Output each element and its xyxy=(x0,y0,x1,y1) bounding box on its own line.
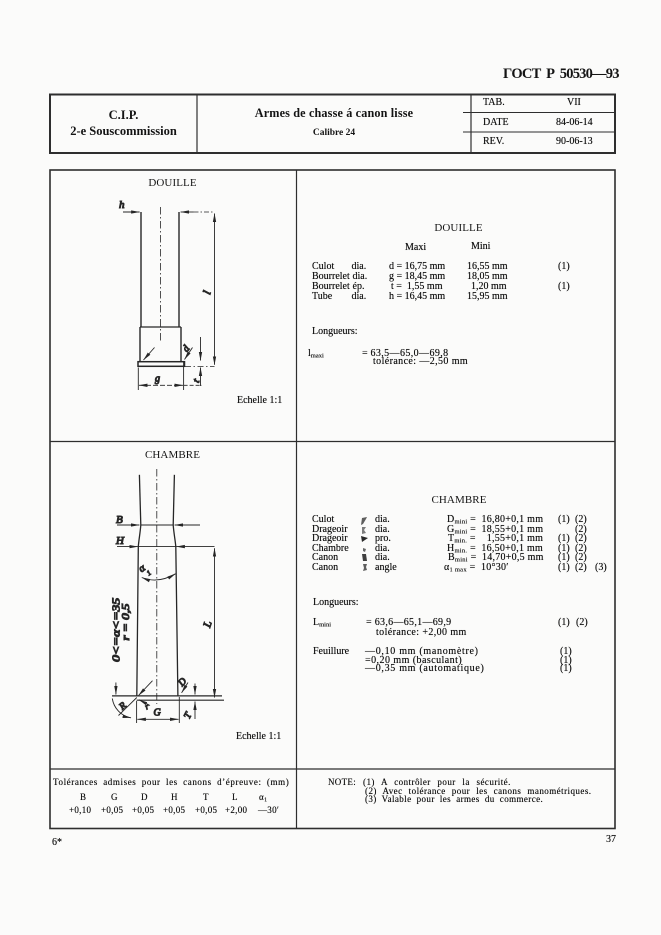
svg-text:r: r xyxy=(143,701,151,712)
svg-text:T: T xyxy=(182,710,195,721)
svg-text:H: H xyxy=(115,535,125,547)
svg-text:1: 1 xyxy=(145,569,153,578)
svg-text:l: l xyxy=(201,289,213,296)
svg-text:r = 0,5: r = 0,5 xyxy=(121,604,132,641)
svg-text:d: d xyxy=(181,343,193,355)
svg-text:L: L xyxy=(201,619,215,629)
svg-text:g: g xyxy=(155,374,160,385)
svg-text:h: h xyxy=(119,199,125,211)
svg-text:B: B xyxy=(116,514,123,526)
svg-text:G: G xyxy=(154,708,161,719)
